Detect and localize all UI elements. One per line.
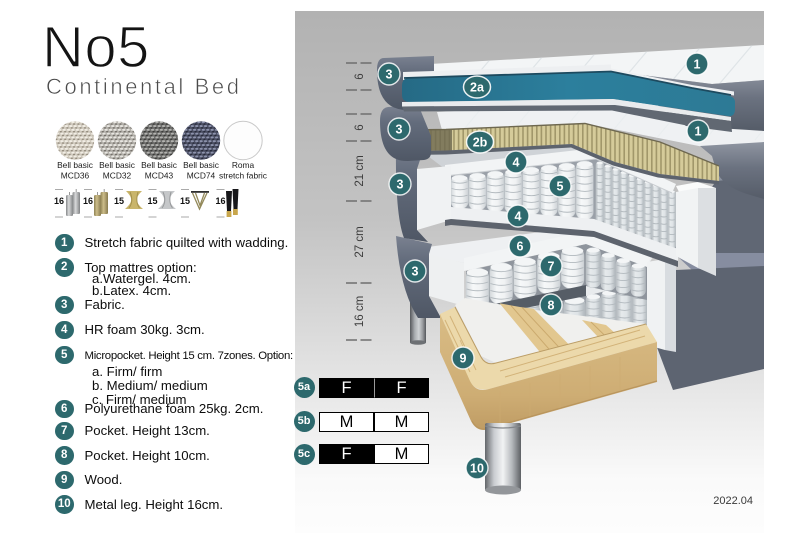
svg-text:Bell basic: Bell basic [99,160,135,170]
svg-text:Bell basic: Bell basic [57,160,93,170]
svg-text:Bell basic: Bell basic [183,160,219,170]
svg-text:15: 15 [147,196,157,206]
svg-text:MCD43: MCD43 [145,171,174,181]
svg-text:MCD74: MCD74 [187,171,216,181]
svg-text:stretch fabric: stretch fabric [219,171,267,181]
svg-text:MCD36: MCD36 [61,171,90,181]
svg-text:Roma: Roma [232,160,255,170]
svg-text:16: 16 [215,196,225,206]
svg-text:Bell basic: Bell basic [141,160,177,170]
svg-text:16: 16 [54,196,64,206]
svg-text:15: 15 [180,196,190,206]
svg-text:15: 15 [114,196,124,206]
svg-text:16: 16 [83,196,93,206]
svg-text:MCD32: MCD32 [103,171,132,181]
